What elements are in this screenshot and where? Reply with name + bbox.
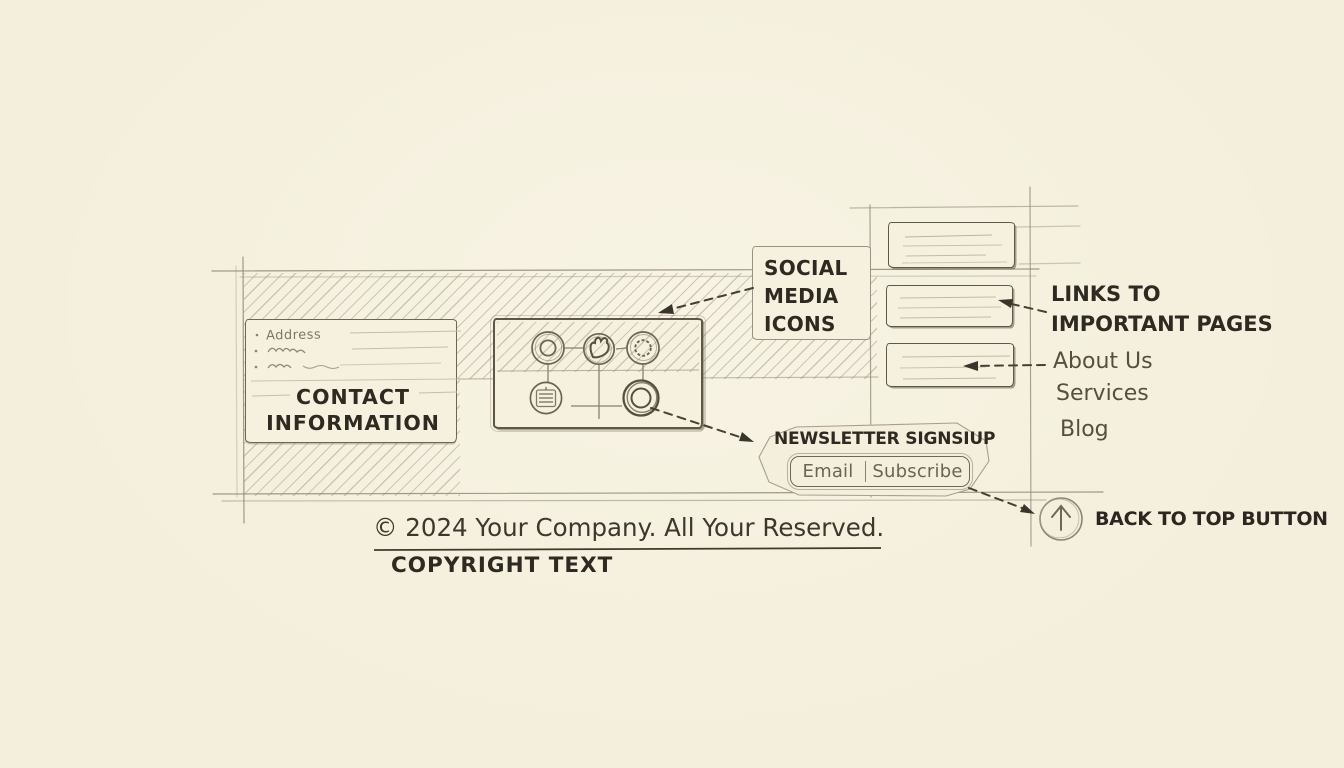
- subscribe-button[interactable]: Subscribe: [865, 461, 969, 482]
- back-to-top-label: BACK TO TOP BUTTON: [1095, 508, 1328, 530]
- footer-link-box-3[interactable]: [886, 343, 1014, 387]
- social-box-hatch: [497, 322, 699, 372]
- social-label: SOCIAL MEDIA ICONS: [764, 254, 864, 338]
- links-label: LINKS TO IMPORTANT PAGES: [1051, 279, 1296, 339]
- back-to-top-button[interactable]: [1040, 498, 1082, 540]
- newsletter-label: NEWSLETTER SIGNSIUP: [774, 429, 995, 449]
- contact-title: CONTACT INFORMATION: [258, 384, 448, 436]
- copyright-line: © 2024 Your Company. All Your Reserved.: [373, 513, 884, 542]
- social-icons-box: [493, 318, 703, 429]
- footer-link-box-1[interactable]: [888, 222, 1015, 268]
- email-input[interactable]: Email: [791, 461, 865, 482]
- newsletter-signup-form: Email Subscribe: [790, 456, 970, 487]
- nav-link-blog[interactable]: Blog: [1060, 417, 1109, 442]
- wireframe-canvas: Address CONTACT INFORMATION SOCIAL MEDIA…: [0, 0, 1344, 768]
- copyright-caption: COPYRIGHT TEXT: [391, 553, 613, 578]
- contact-address-label: Address: [266, 328, 322, 344]
- copyright-underline: [374, 548, 881, 550]
- nav-link-about-us[interactable]: About Us: [1053, 349, 1153, 374]
- nav-link-services[interactable]: Services: [1056, 381, 1149, 406]
- footer-link-box-2[interactable]: [886, 285, 1013, 327]
